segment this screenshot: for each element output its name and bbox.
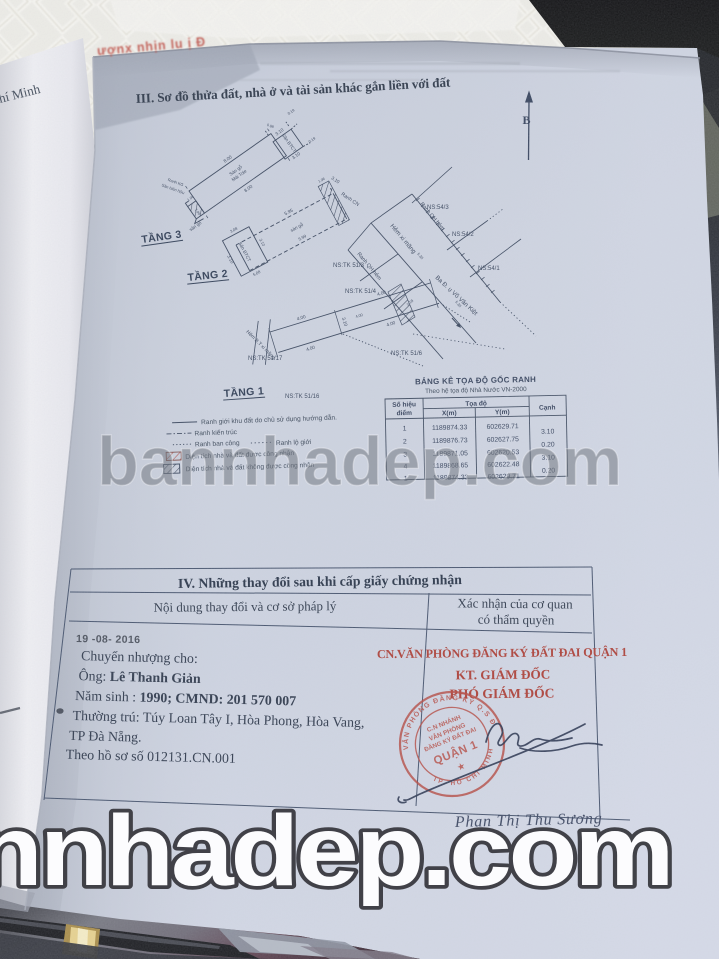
svg-text:nnhadep.com: nnhadep.com: [0, 794, 671, 906]
svg-text:bannhadep.com: bannhadep.com: [97, 423, 622, 500]
